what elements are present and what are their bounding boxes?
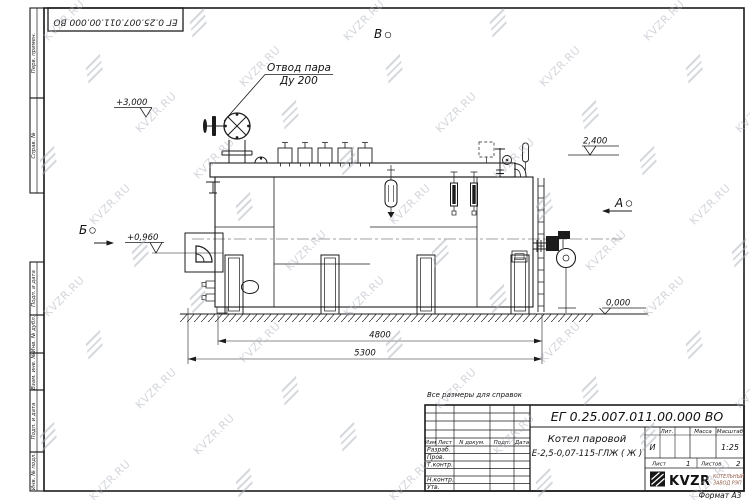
technical-drawing: Перв. примен. Справ. № Подп. и дата Инв.…: [0, 0, 750, 500]
burner-box: [185, 233, 223, 301]
elevation-top: +3,000: [116, 98, 147, 108]
callout-line2: Ду 200: [279, 75, 318, 87]
boiler-body: [210, 163, 533, 313]
vent-dome: [255, 157, 267, 163]
ground-line: [180, 314, 648, 322]
stamp-label: Подп. и дата: [31, 270, 37, 307]
product-name-line1: Котел паровой: [548, 434, 627, 445]
stamp-label: Взам. инв. №: [31, 353, 37, 390]
view-label-b: Б: [79, 223, 87, 237]
support-legs: [225, 255, 529, 314]
elevation-ground: 0,000: [606, 299, 630, 309]
inverted-designation: ЕГ 0.25.007.011.00.000 ВО: [53, 17, 177, 27]
drawing-sheet: Перв. примен. Справ. № Подп. и дата Инв.…: [0, 0, 750, 500]
lit-label: Лит.: [660, 429, 674, 435]
stamp-label: Инв. № дубл.: [31, 316, 37, 353]
annotation-texts: Отвод пара Ду 200 +3,000 +0,960 2,400 0,…: [79, 27, 630, 399]
role-tkontr: Т.контр.: [427, 462, 453, 469]
company-sub2: ЗАВОД РЭП: [713, 481, 742, 487]
elevation-right: 2,400: [583, 137, 607, 147]
masshtab-label: Масштаб: [717, 429, 744, 435]
callout-line1: Отвод пара: [267, 62, 331, 74]
sheet-value: 1: [686, 460, 690, 468]
format-label: Формат А3: [699, 491, 742, 500]
title-block-texts: ЕГ 0.25.007.011.00.000 ВО Котел паровой …: [425, 409, 745, 500]
header-list: Лист: [437, 440, 453, 446]
reference-note: Все размеры для справок: [427, 391, 523, 399]
company-logo-text: KVZR: [669, 474, 711, 489]
massa-label: Масса: [694, 429, 712, 435]
right-top-fittings: [206, 142, 529, 193]
top-hatches: [278, 143, 372, 167]
header-podp: Подп.: [494, 440, 511, 446]
sheets-label: Листов: [700, 462, 722, 468]
view-label-v: В: [374, 27, 382, 41]
manhole: [242, 281, 259, 294]
dim-4800: 4800: [369, 331, 391, 341]
role-utv: Утв.: [427, 484, 440, 491]
role-nkontr: Н.контр.: [427, 477, 454, 484]
role-prov: Пров.: [427, 454, 445, 461]
dim-5300: 5300: [354, 349, 376, 359]
steam-outlet-valve: [203, 113, 252, 163]
lit-value: И: [650, 443, 656, 452]
company-sub1: КОТЕЛЬНЫЙ: [713, 473, 745, 480]
stamp-label: Справ. №: [31, 132, 37, 159]
view-arrows: [90, 32, 632, 245]
feed-pump: [533, 231, 576, 313]
scale-value: 1:25: [721, 443, 739, 452]
stamp-label: Инв. № подл.: [31, 453, 37, 490]
header-n-dokum: N докум.: [459, 440, 485, 446]
role-razrab: Разраб.: [427, 447, 451, 454]
boiler-side-view: [152, 113, 648, 322]
view-label-a: А: [614, 196, 623, 210]
header-izm: Изм: [425, 440, 436, 446]
designation: ЕГ 0.25.007.011.00.000 ВО: [551, 409, 724, 424]
header-data: Дата: [514, 440, 530, 446]
water-level-gauges: [385, 165, 478, 218]
elevation-burner: +0,960: [127, 233, 158, 243]
product-name-line2: Е-2,5-0,07-115-ГЛЖ ( Ж ): [532, 449, 642, 459]
stamp-label: Перв. примен.: [31, 33, 37, 73]
stamp-labels: Перв. примен. Справ. № Подп. и дата Инв.…: [31, 17, 178, 491]
sheets-value: 2: [736, 460, 741, 468]
sheet-label: Лист: [651, 462, 667, 468]
stamp-label: Подп. и дата: [31, 403, 37, 440]
